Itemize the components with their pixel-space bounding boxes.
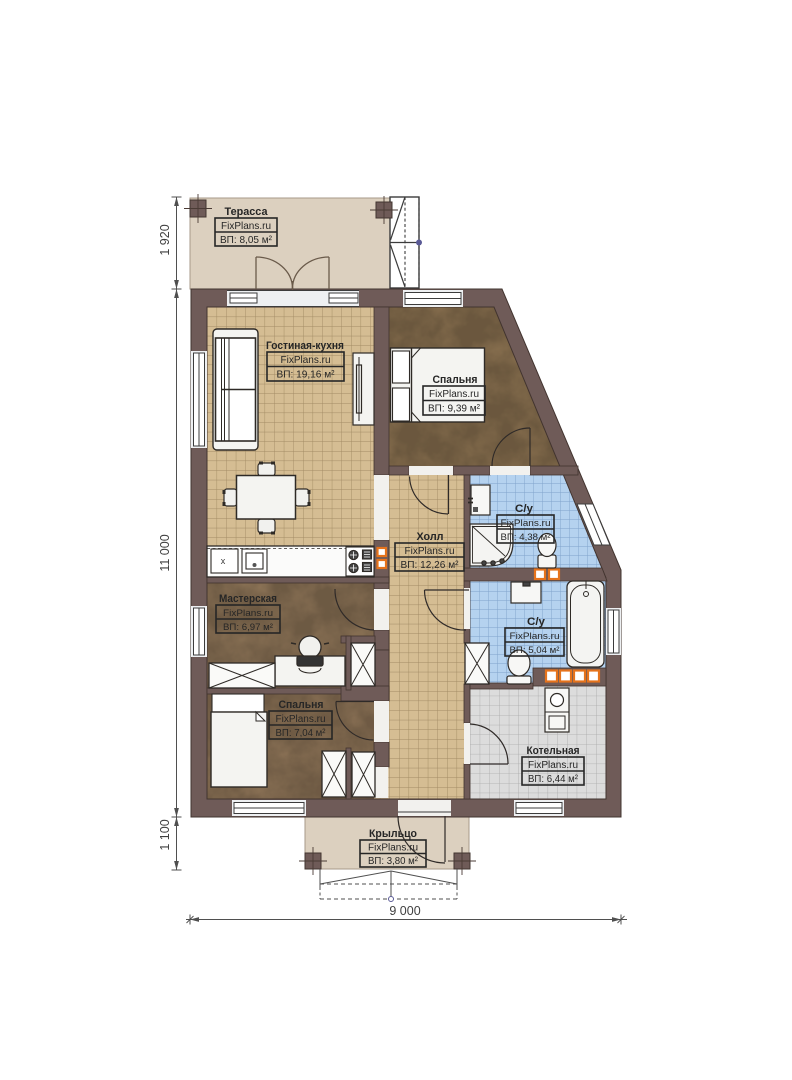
svg-text:ВП: 3,80 м²: ВП: 3,80 м² (368, 856, 419, 867)
svg-text:ВП: 6,97 м²: ВП: 6,97 м² (223, 622, 273, 633)
svg-text:x: x (221, 556, 226, 566)
svg-text:ВП: 5,04 м²: ВП: 5,04 м² (510, 645, 560, 656)
svg-text:9 000: 9 000 (389, 904, 420, 918)
svg-text:FixPlans.ru: FixPlans.ru (223, 608, 273, 619)
svg-text:ВП: 7,04 м²: ВП: 7,04 м² (276, 728, 327, 739)
svg-text:FixPlans.ru: FixPlans.ru (221, 220, 271, 232)
svg-text:ВП: 9,39 м²: ВП: 9,39 м² (428, 404, 481, 415)
svg-text:Спальня: Спальня (279, 699, 324, 711)
svg-text:Крыльцо: Крыльцо (369, 828, 417, 840)
svg-text:ВП: 12,26 м²: ВП: 12,26 м² (401, 559, 459, 571)
svg-text:Котельная: Котельная (527, 745, 580, 757)
svg-text:С/у: С/у (527, 616, 546, 628)
svg-text:11 000: 11 000 (158, 534, 172, 571)
svg-text:FixPlans.ru: FixPlans.ru (276, 714, 326, 725)
svg-text:С/у: С/у (515, 503, 534, 515)
svg-text:1 920: 1 920 (158, 224, 172, 255)
svg-text:1 100: 1 100 (158, 819, 172, 850)
svg-text:Мастерская: Мастерская (219, 593, 277, 605)
svg-text:Спальня: Спальня (433, 374, 478, 386)
svg-text:FixPlans.ru: FixPlans.ru (368, 843, 418, 854)
svg-text:Терасса: Терасса (225, 206, 269, 218)
svg-text:FixPlans.ru: FixPlans.ru (405, 545, 455, 557)
svg-text:FixPlans.ru: FixPlans.ru (528, 760, 578, 771)
svg-text:FixPlans.ru: FixPlans.ru (429, 389, 479, 400)
svg-text:ВП: 4,38 м²: ВП: 4,38 м² (501, 532, 551, 543)
svg-text:FixPlans.ru: FixPlans.ru (281, 354, 331, 366)
svg-text:ВП: 6,44 м²: ВП: 6,44 м² (528, 774, 579, 785)
svg-text:FixPlans.ru: FixPlans.ru (510, 631, 560, 642)
svg-text:ВП: 19,16 м²: ВП: 19,16 м² (277, 369, 335, 381)
svg-text:Холл: Холл (417, 531, 444, 543)
svg-text:Гостиная-кухня: Гостиная-кухня (266, 340, 344, 352)
svg-text:FixPlans.ru: FixPlans.ru (501, 518, 551, 529)
svg-text:ВП: 8,05 м²: ВП: 8,05 м² (220, 234, 272, 246)
